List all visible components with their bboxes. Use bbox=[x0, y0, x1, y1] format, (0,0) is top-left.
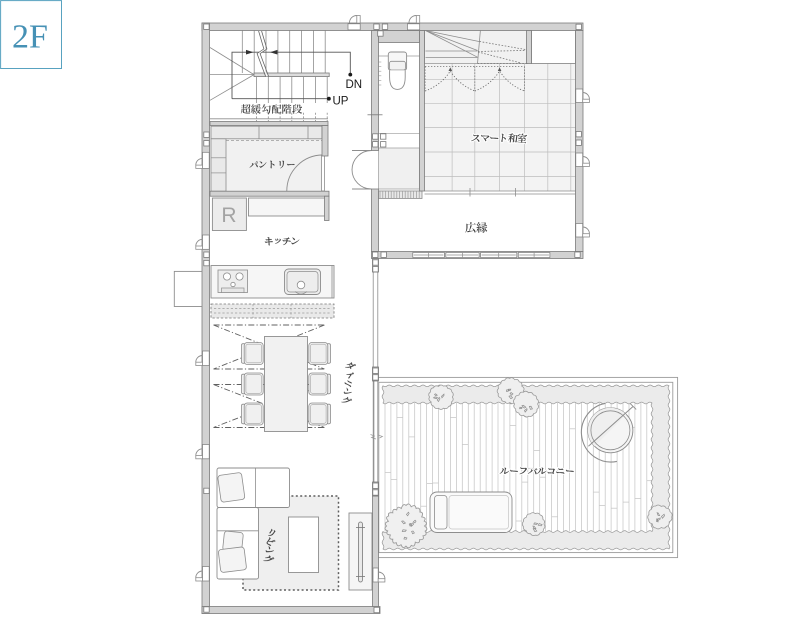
svg-text:DN: DN bbox=[346, 79, 363, 91]
svg-text:R: R bbox=[221, 204, 236, 227]
svg-text:2F: 2F bbox=[12, 19, 48, 56]
svg-text:UP: UP bbox=[333, 96, 349, 108]
